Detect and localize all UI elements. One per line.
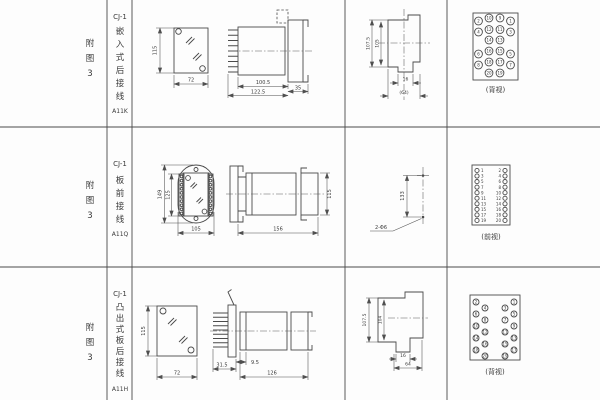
terminal-grid: 1357911131517192468101214161820: [475, 168, 507, 223]
appendix-char: 图: [86, 196, 95, 206]
terminal-number: 19: [502, 353, 508, 358]
terminal-number: 8: [484, 317, 487, 322]
row-a11q: 附 图 3 CJ-1 板 前 接 线 A11Q 149 125: [86, 160, 510, 241]
hole-note: 2-Φ6: [375, 225, 387, 231]
type-char: 接: [116, 201, 125, 212]
dim-label: 64: [405, 362, 411, 368]
terminal-number: 11: [497, 27, 503, 32]
terminal-view-back: 2468101214161820135791113151719 (背视): [470, 295, 520, 376]
side-view-drawing: 156 115: [226, 166, 333, 236]
appendix-char: 附: [86, 38, 95, 49]
terminal-number: 4: [477, 29, 480, 34]
terminal-number: 7: [504, 317, 507, 322]
type-char: 线: [116, 91, 125, 102]
terminal-caption: (前视): [481, 232, 501, 241]
terminal-number: 5: [481, 179, 484, 184]
terminal-pin: [209, 200, 212, 203]
terminal-pin: [180, 204, 183, 207]
terminal-number: 4: [498, 174, 501, 179]
type-char: 入: [116, 40, 125, 50]
terminal-number: 11: [502, 329, 508, 334]
terminal-number: 17: [497, 59, 503, 64]
type-char: 板: [116, 335, 125, 346]
terminal-grid: 2109141211314136161558181772019: [475, 14, 515, 77]
terminal-number: 13: [481, 201, 487, 206]
terminal-number: 2: [475, 299, 478, 304]
terminal-number: 19: [497, 70, 503, 75]
relay-dimension-diagram: 附 图 3 CJ-1 嵌 入 式 后 接 线 A11K 115 72: [0, 0, 600, 400]
terminal-pin: [180, 179, 183, 182]
terminal-number: 18: [486, 59, 492, 64]
terminal-number: 2: [498, 168, 501, 173]
terminal-pin: [475, 185, 479, 189]
terminal-caption: (背视): [486, 85, 506, 94]
terminal-number: 17: [481, 213, 487, 218]
dim-label: 133: [400, 191, 406, 201]
terminal-number: 3: [509, 29, 512, 34]
terminal-pin: [180, 212, 183, 215]
terminal-number: 6: [477, 51, 480, 56]
terminal-pin: [209, 208, 212, 211]
code-label: A11Q: [112, 231, 129, 238]
terminal-pin: [475, 168, 479, 172]
appendix-char: 附: [86, 180, 95, 191]
dim-label: 16: [400, 353, 406, 359]
dim-label: 115: [153, 46, 159, 56]
terminal-number: 12: [482, 329, 488, 334]
dim-label: 72: [174, 371, 180, 377]
terminal-pin: [209, 196, 212, 199]
terminal-view-front: 1357911131517192468101214161820 (前视): [472, 165, 510, 241]
bent-pin: [228, 290, 234, 306]
terminal-number: 9: [481, 190, 484, 195]
terminal-number: 15: [497, 48, 503, 53]
terminal-pin: [475, 196, 479, 200]
appendix-char: 3: [87, 69, 92, 79]
terminal-pin: [503, 196, 507, 200]
terminal-pin: [475, 207, 479, 211]
terminal-pin: [503, 174, 507, 178]
dashed-handle: [277, 10, 288, 23]
hatch-mark: [179, 336, 188, 344]
relay-dimension-sheet: 附 图 3 CJ-1 嵌 入 式 后 接 线 A11K 115 72: [0, 0, 600, 400]
type-char: 凸: [116, 303, 125, 313]
terminal-number: 1: [513, 299, 516, 304]
dim-label: 105: [191, 227, 201, 233]
type-char: 后: [116, 65, 125, 76]
terminal-number: 9: [499, 15, 502, 20]
terminal-number: 10: [486, 15, 492, 20]
terminal-pins-comb: [213, 313, 228, 347]
terminal-pin: [180, 208, 183, 211]
terminal-pin: [180, 175, 183, 178]
terminal-number: 13: [511, 335, 517, 340]
front-outline-drawing: 107.5 104 16 64: [362, 292, 428, 371]
terminal-number: 6: [498, 179, 501, 184]
terminal-pin: [209, 175, 212, 178]
mounting-hole-drawing: 133 2-Φ6: [370, 167, 429, 231]
terminal-pin: [503, 207, 507, 211]
terminal-pin: [475, 174, 479, 178]
appendix-char: 附: [86, 322, 95, 333]
side-view-drawing: 31.5 9.5 126: [210, 290, 316, 381]
terminal-pin: [503, 202, 507, 206]
type-char: 式: [116, 52, 125, 63]
terminal-pin: [475, 218, 479, 222]
terminal-pin: [180, 183, 183, 186]
terminal-pin: [180, 192, 183, 195]
appendix-char: 3: [87, 353, 92, 363]
dim-label: 31.5: [216, 363, 227, 369]
terminal-number: 1: [481, 168, 484, 173]
terminal-pin: [209, 192, 212, 195]
hatch-mark: [186, 37, 195, 45]
row-a11k: 附 图 3 CJ-1 嵌 入 式 后 接 线 A11K 115 72: [86, 9, 518, 115]
terminal-number: 10: [496, 190, 502, 195]
terminal-pin: [475, 202, 479, 206]
type-char: 接: [116, 357, 125, 368]
terminal-number: 7: [509, 62, 512, 67]
type-char: 线: [116, 368, 125, 379]
dim-label: (64): [399, 90, 408, 96]
terminal-pin: [209, 183, 212, 186]
dim-label: 122.5: [251, 90, 265, 96]
terminal-number: 20: [496, 218, 502, 223]
terminal-number: 8: [477, 62, 480, 67]
dim-label: 105: [375, 39, 381, 48]
front-outline-drawing: 107.5 105 16 (64): [366, 9, 431, 100]
terminal-pin: [503, 191, 507, 195]
terminal-pin: [503, 218, 507, 222]
dim-label: 35: [295, 86, 301, 92]
terminal-number: 16: [486, 48, 492, 53]
terminal-number: 20: [482, 353, 488, 358]
terminal-number: 14: [486, 37, 492, 42]
dim-label: 104: [378, 316, 384, 325]
terminal-number: 7: [481, 185, 484, 190]
terminal-pin: [209, 179, 212, 182]
dim-label: 126: [267, 371, 277, 377]
appendix-char: 图: [86, 338, 95, 348]
terminal-number: 2: [477, 18, 480, 23]
dim-label: 107.5: [362, 313, 368, 326]
terminal-number: 19: [481, 218, 487, 223]
dim-label: 115: [141, 326, 147, 336]
appendix-char: 图: [86, 54, 95, 64]
terminal-number: 18: [473, 347, 479, 352]
type-char: 线: [116, 214, 125, 225]
type-char: 出: [116, 313, 125, 324]
terminal-caption: (背视): [485, 367, 505, 376]
terminal-number: 17: [511, 347, 517, 352]
terminal-number: 20: [486, 70, 492, 75]
terminal-number: 11: [481, 196, 487, 201]
terminal-pin: [180, 188, 183, 191]
appendix-char: 3: [87, 211, 92, 221]
type-char: 嵌: [116, 27, 125, 37]
hatch-mark: [193, 53, 202, 61]
terminal-grid: 2468101214161820135791113151719: [473, 299, 517, 359]
terminal-pin: [503, 213, 507, 217]
terminal-strip-holes: [180, 175, 212, 215]
terminal-number: 3: [481, 174, 484, 179]
dim-label: 149: [158, 190, 164, 200]
dim-label: 107.5: [366, 37, 372, 50]
terminal-pin: [209, 204, 212, 207]
terminal-number: 9: [513, 323, 516, 328]
terminal-number: 10: [473, 323, 479, 328]
code-label: A11K: [112, 108, 129, 115]
terminal-number: 1: [509, 18, 512, 23]
terminal-number: 3: [504, 305, 507, 310]
terminal-view-back: 2109141211314136161558181772019 (背视): [473, 13, 518, 94]
type-char: 前: [116, 188, 125, 199]
terminal-number: 6: [475, 311, 478, 316]
terminal-pin: [503, 180, 507, 184]
terminal-number: 18: [496, 213, 502, 218]
terminal-number: 14: [496, 201, 502, 206]
terminal-number: 16: [496, 207, 502, 212]
dim-label: 100.5: [256, 80, 270, 86]
terminal-number: 12: [496, 196, 502, 201]
hatch-mark: [168, 318, 177, 326]
panel-cutout-drawing: 115 72: [141, 306, 197, 380]
terminal-number: 15: [481, 207, 487, 212]
front-plate-drawing: 149 125 105: [158, 165, 215, 236]
terminal-number: 15: [502, 341, 508, 346]
dim-label: 16: [403, 77, 409, 83]
terminal-pin: [180, 200, 183, 203]
terminal-number: 13: [497, 37, 503, 42]
terminal-number: 4: [484, 305, 487, 310]
terminal-pin: [475, 180, 479, 184]
terminal-pin: [503, 168, 507, 172]
type-char: 式: [116, 324, 125, 335]
side-view-drawing: 100.5 35 122.5: [228, 10, 312, 98]
terminal-number: 5: [513, 311, 516, 316]
model-label: CJ-1: [113, 160, 127, 168]
model-label: CJ-1: [113, 13, 127, 21]
terminal-pin: [503, 185, 507, 189]
terminal-number: 12: [486, 27, 492, 32]
panel-cutout-drawing: 115 72: [153, 28, 209, 88]
terminal-number: 8: [498, 185, 501, 190]
hatch-mark: [191, 183, 198, 189]
terminal-pin: [475, 191, 479, 195]
type-char: 板: [116, 175, 125, 186]
model-label: CJ-1: [113, 290, 127, 298]
row-a11h: 附 图 3 CJ-1 凸 出 式 板 后 接 线 A11H 115 72: [86, 290, 520, 394]
dim-label: 125: [166, 190, 172, 200]
dim-label: 9.5: [251, 360, 259, 366]
terminal-pin: [475, 213, 479, 217]
dim-label: 115: [327, 189, 333, 199]
terminal-pin: [209, 212, 212, 215]
code-label: A11H: [112, 386, 128, 393]
terminal-pin: [209, 188, 212, 191]
terminal-number: 5: [509, 51, 512, 56]
dim-label: 156: [273, 227, 283, 233]
terminal-number: 14: [473, 335, 479, 340]
terminal-number: 16: [482, 341, 488, 346]
terminal-pin: [180, 196, 183, 199]
type-char: 后: [116, 346, 125, 357]
dim-label: 72: [188, 78, 194, 84]
hatch-mark: [197, 198, 204, 204]
type-char: 接: [116, 78, 125, 89]
